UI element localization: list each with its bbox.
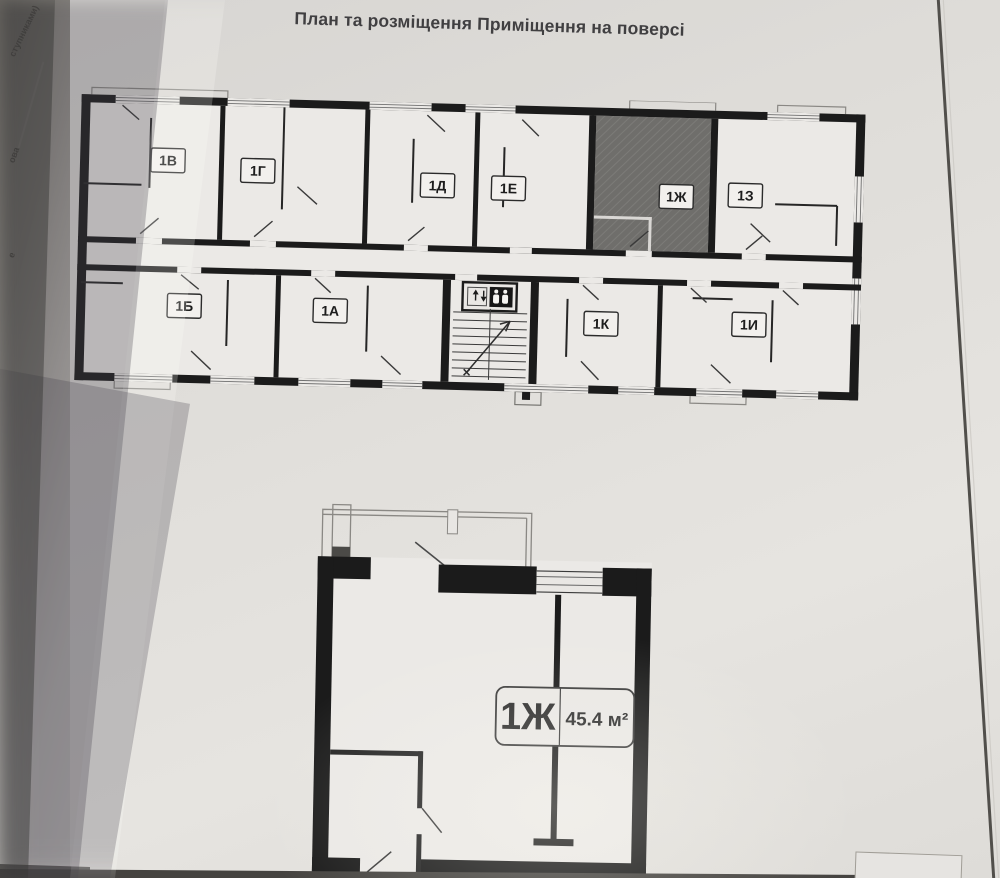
unit-window — [536, 570, 602, 593]
edge-text-fragment: ова — [7, 146, 22, 164]
unit-label-1v: 1В — [151, 148, 186, 173]
unit-label-1z: 1З — [728, 183, 763, 208]
svg-text:1К: 1К — [593, 316, 610, 332]
unit-detail-plan: 1Ж 45.4 м² — [299, 500, 664, 878]
faint-table-frame — [855, 852, 962, 878]
edge-rule-line — [18, 62, 44, 149]
unit-info-box: 1Ж 45.4 м² — [495, 687, 634, 748]
svg-text:1И: 1И — [740, 316, 758, 332]
unit-area-label: 45.4 м² — [565, 709, 628, 731]
elevator-icon — [462, 282, 517, 311]
previous-page-edge: ступниками) ова е — [0, 0, 70, 878]
page-title: План та розміщення Приміщення на поверсі — [254, 7, 724, 42]
svg-text:1Ж: 1Ж — [666, 188, 687, 205]
svg-text:1А: 1А — [321, 302, 339, 318]
building-floor-plan-svg: 1В 1Г 1Д 1Е 1Ж 1З — [70, 86, 870, 419]
svg-text:1Д: 1Д — [428, 177, 446, 193]
photographed-document-page: ступниками) ова е План та розміщення При… — [0, 0, 1000, 878]
edge-text-fragment: ступниками) — [7, 4, 40, 58]
building-floor-plan: 1В 1Г 1Д 1Е 1Ж 1З — [70, 86, 870, 419]
svg-text:1Е: 1Е — [500, 180, 518, 196]
svg-text:1Б: 1Б — [175, 298, 193, 314]
unit-label-1k: 1К — [584, 311, 619, 336]
unit-detail-label: 1Ж — [500, 696, 557, 739]
page-edge-highlight — [943, 0, 999, 878]
unit-label-1i: 1И — [732, 312, 767, 337]
svg-text:1Г: 1Г — [250, 163, 266, 179]
highlighted-unit-region — [593, 116, 711, 253]
unit-label-1b: 1Б — [167, 293, 202, 318]
unit-label-1g: 1Г — [241, 158, 276, 183]
svg-text:1В: 1В — [159, 152, 177, 168]
page-edge-line — [938, 0, 994, 878]
svg-text:1З: 1З — [737, 187, 754, 203]
unit-label-1zh-highlighted: 1Ж — [659, 184, 694, 209]
unit-label-1e: 1Е — [491, 176, 526, 201]
entrance-stub — [522, 392, 530, 400]
unit-label-1d: 1Д — [420, 173, 455, 198]
unit-label-1a: 1А — [313, 298, 348, 323]
edge-text-fragment: е — [6, 251, 17, 259]
unit-detail-plan-svg: 1Ж 45.4 м² — [299, 500, 664, 878]
